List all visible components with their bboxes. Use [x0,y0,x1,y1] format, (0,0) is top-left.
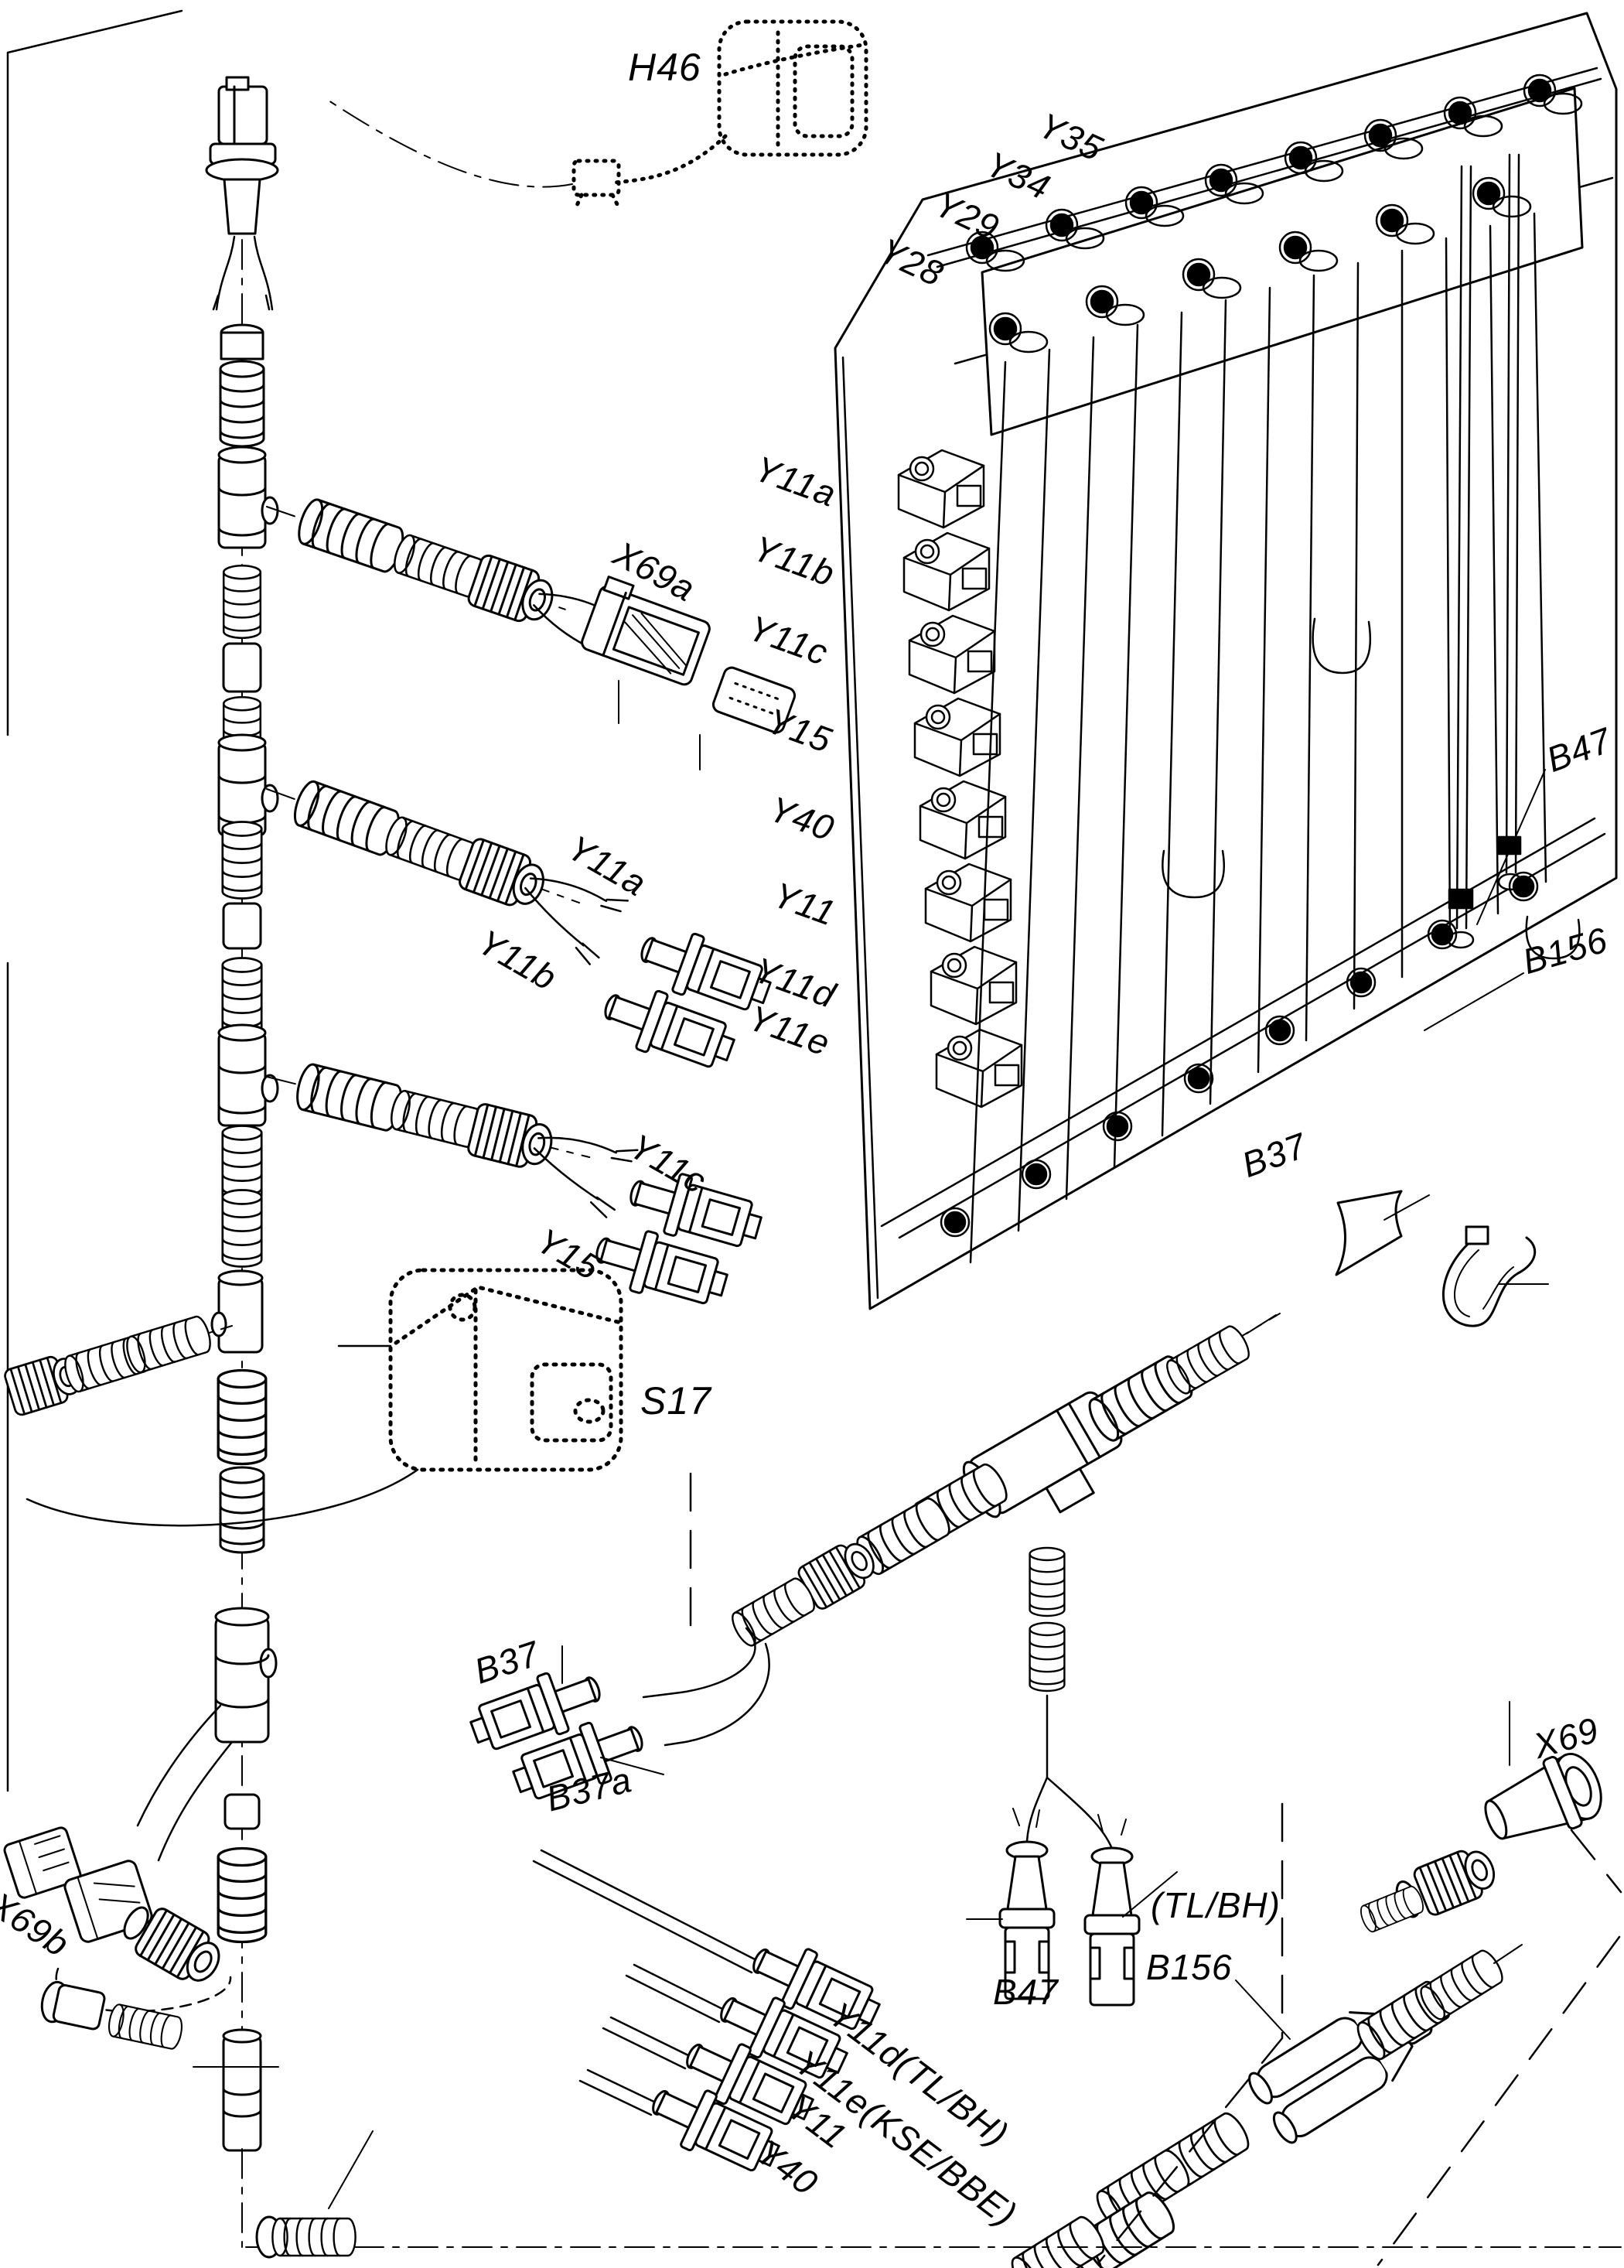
part-label-b47-cable: B47 [993,1974,1059,2010]
part-label-h46: H46 [628,48,701,87]
branch-y11ab [248,764,777,1079]
tee-junction-1 [219,447,278,548]
branch-x69a [258,482,797,770]
tee-junction-2 [219,735,278,835]
diagram-line-art [0,0,1624,2268]
diagram-page: H46 Y35 Y34 Y29 Y28 Y11a Y11b Y11c Y15 Y… [0,0,1624,2268]
marker-flag [1336,1191,1429,1275]
cable-tie [1443,1227,1548,1326]
border-lines [8,11,182,1791]
sensor-connector-b156 [1085,1848,1139,2005]
leader-b156 [1424,973,1523,1030]
connector-x69a [580,576,715,686]
h46-beacon [574,22,866,209]
h46-link-axis [329,101,572,187]
s17-switch [27,1270,621,1525]
top-plug-connector [206,77,278,309]
junction-cylinder [212,1271,262,1352]
tee-junction-4 [216,1608,276,1742]
part-label-s17: S17 [640,1382,711,1420]
main-harness [138,77,278,2150]
left-edge-chain [3,1314,232,1416]
bottom-cylinder [193,2030,278,2150]
tee-junction-3 [219,1025,278,1125]
part-label-tlbh: (TL/BH) [1151,1887,1281,1923]
part-label-b156-cable: B156 [1146,1949,1232,1985]
